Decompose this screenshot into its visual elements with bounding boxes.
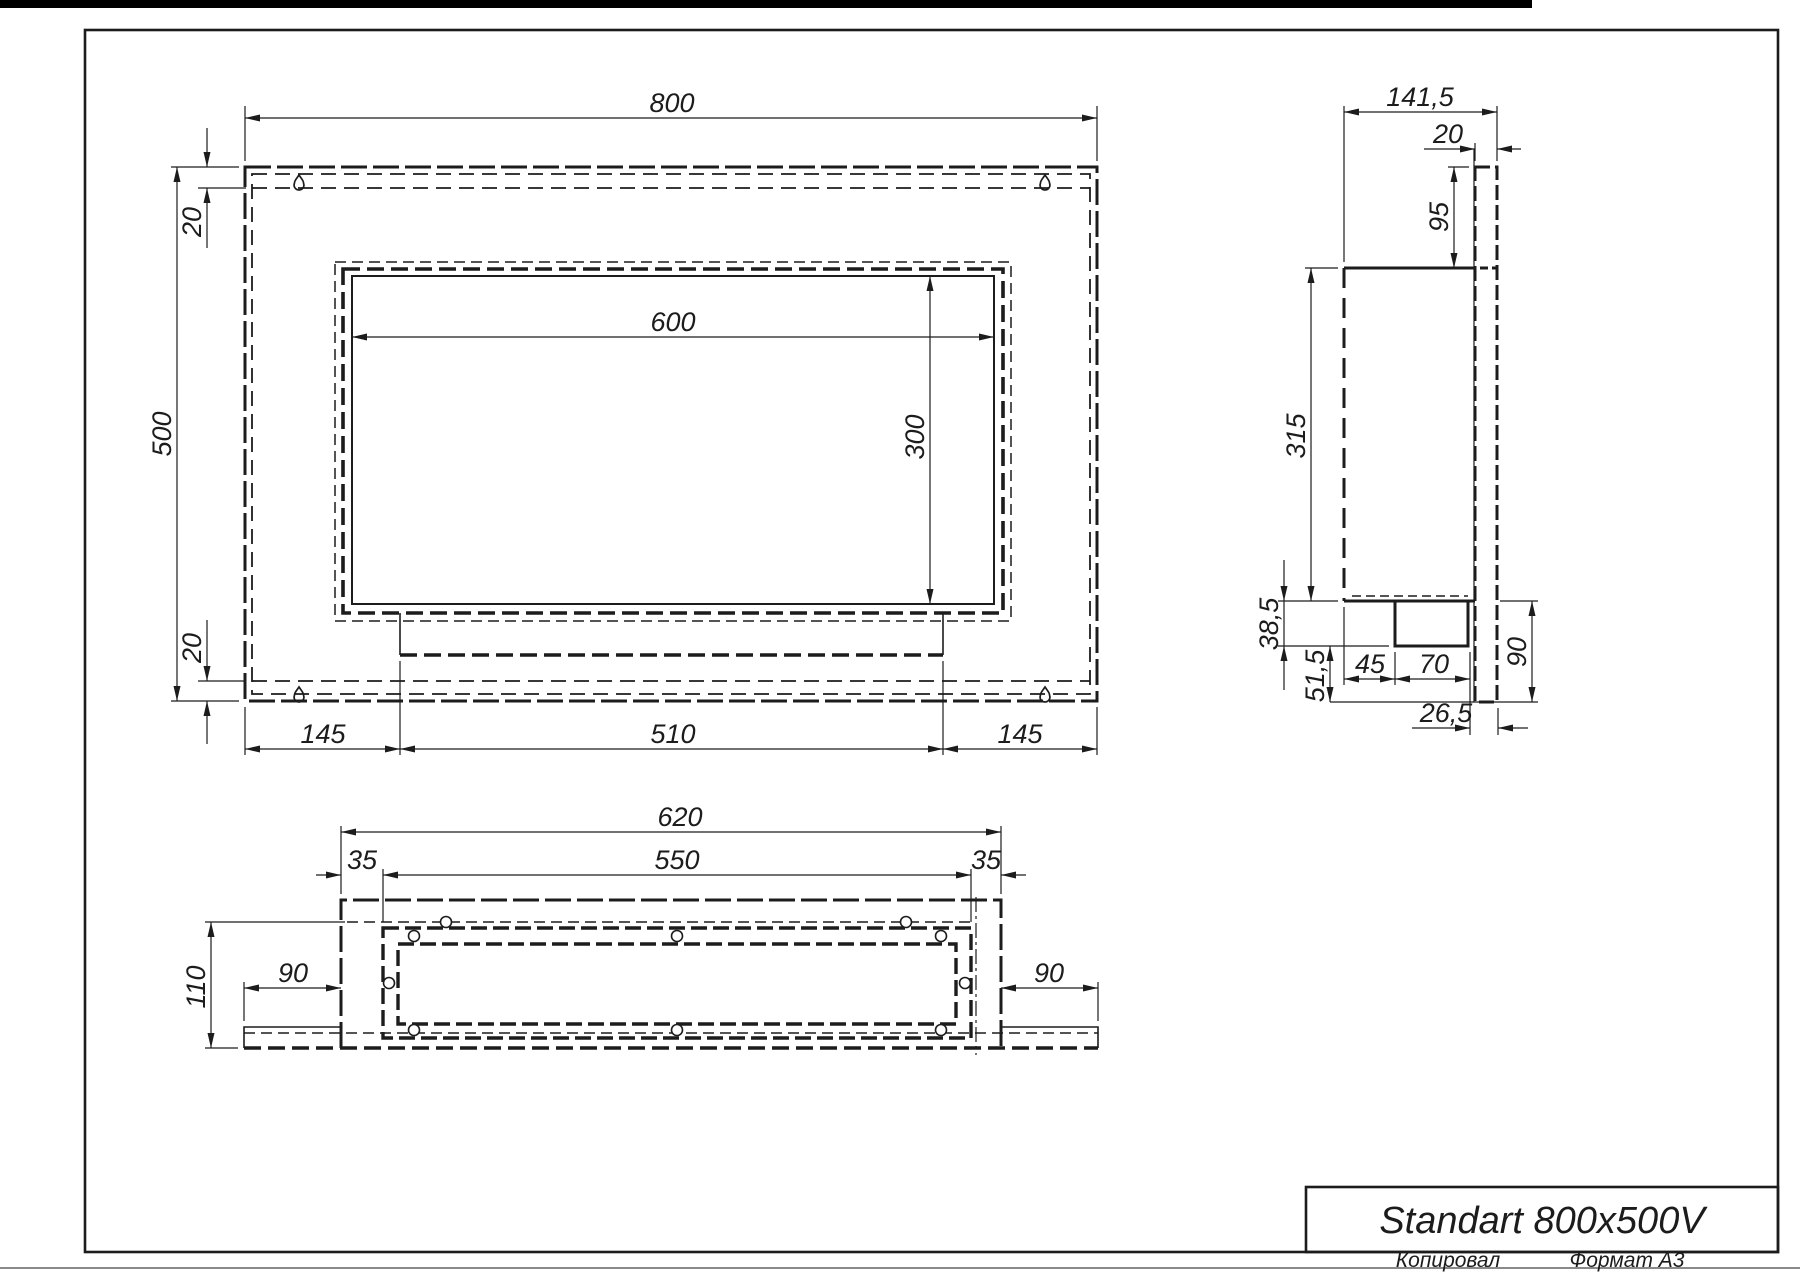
dim-opening-width: 600: [352, 307, 994, 337]
dim-label: 95: [1424, 201, 1454, 232]
screw-hole-icon: [409, 931, 420, 942]
front-view: 800 500 20 20 600: [147, 88, 1097, 755]
footer-format-label: Формат А3: [1570, 1249, 1685, 1272]
dim-label: 51,5: [1300, 649, 1330, 703]
dim-front-height: 500: [147, 167, 239, 701]
dim-label: 300: [900, 414, 930, 459]
side-burner-tray: [1395, 601, 1468, 646]
dim-label: 800: [649, 88, 694, 118]
dim-label: 26,5: [1419, 698, 1474, 728]
dim-label: 141,5: [1386, 82, 1455, 112]
dim-side-panel-below-body: 90: [1500, 601, 1538, 702]
screw-hole-icon: [441, 917, 452, 928]
dim-label: 35: [971, 845, 1002, 875]
screw-hole-icon: [901, 917, 912, 928]
dim-label: 500: [147, 411, 177, 456]
dim-front-width: 800: [245, 88, 1097, 161]
dim-bottom-flange-left: 90: [244, 958, 341, 1021]
bottom-view: 620 35 550 35 110 90: [181, 802, 1098, 1055]
dim-bottom-depth: 110: [181, 922, 345, 1048]
bottom-opening-wall-inner: [398, 944, 956, 1024]
title-block-product-name: Standart 800x500V: [1379, 1200, 1708, 1242]
dim-bottom-flange-right: 90: [1001, 958, 1098, 1021]
footer-copied-label: Копировал: [1396, 1249, 1501, 1272]
dim-label: 20: [1432, 119, 1463, 149]
side-view: 141,5 20 95 315 38,5: [1254, 82, 1538, 735]
dim-label: 90: [278, 958, 308, 988]
screw-hole-icon: [672, 1025, 683, 1036]
dim-side-panel-thickness: 20: [1424, 119, 1521, 161]
dim-label: 20: [177, 633, 207, 664]
screw-hole-icon: [936, 1025, 947, 1036]
bottom-left-wing: [244, 1027, 341, 1048]
dim-label: 510: [650, 719, 695, 749]
screw-hole-icon: [409, 1025, 420, 1036]
side-panel-outline: [1475, 167, 1497, 702]
top-edge-bar: [0, 0, 1532, 8]
dim-label: 550: [654, 845, 699, 875]
dim-label: 145: [997, 719, 1043, 749]
dim-label: 90: [1502, 637, 1532, 667]
dim-side-body-height: 315: [1278, 268, 1338, 601]
dim-front-top-offset: 20: [177, 128, 246, 248]
dim-label: 315: [1281, 412, 1311, 458]
screw-hole-icon: [960, 978, 971, 989]
dim-label: 620: [657, 802, 702, 832]
dim-label: 20: [177, 207, 207, 238]
dim-side-top-inset: 95: [1424, 167, 1469, 268]
title-block: Standart 800x500V: [1306, 1187, 1778, 1252]
dim-label: 145: [300, 719, 346, 749]
dim-front-foot-chain: 145 510 145: [245, 661, 1097, 755]
dim-label: 45: [1355, 649, 1386, 679]
dim-front-bottom-offset: 20: [177, 620, 246, 744]
screw-hole-icon: [384, 978, 395, 989]
dim-bottom-opening-chain: 35 550 35: [316, 845, 1026, 922]
screw-holes: [384, 917, 971, 1036]
dim-label: 70: [1419, 649, 1449, 679]
front-panel-hidden-edge: [252, 174, 1090, 694]
dim-label: 600: [650, 307, 695, 337]
dim-label: 38,5: [1254, 597, 1284, 651]
bottom-right-wing: [1001, 1027, 1098, 1048]
screw-hole-icon: [672, 931, 683, 942]
dim-opening-height: 300: [900, 276, 930, 604]
screw-hole-icon: [936, 931, 947, 942]
dim-label: 110: [181, 965, 211, 1008]
drawing-sheet: 800 500 20 20 600: [0, 0, 1800, 1273]
dim-label: 90: [1034, 958, 1064, 988]
dim-label: 35: [347, 845, 378, 875]
